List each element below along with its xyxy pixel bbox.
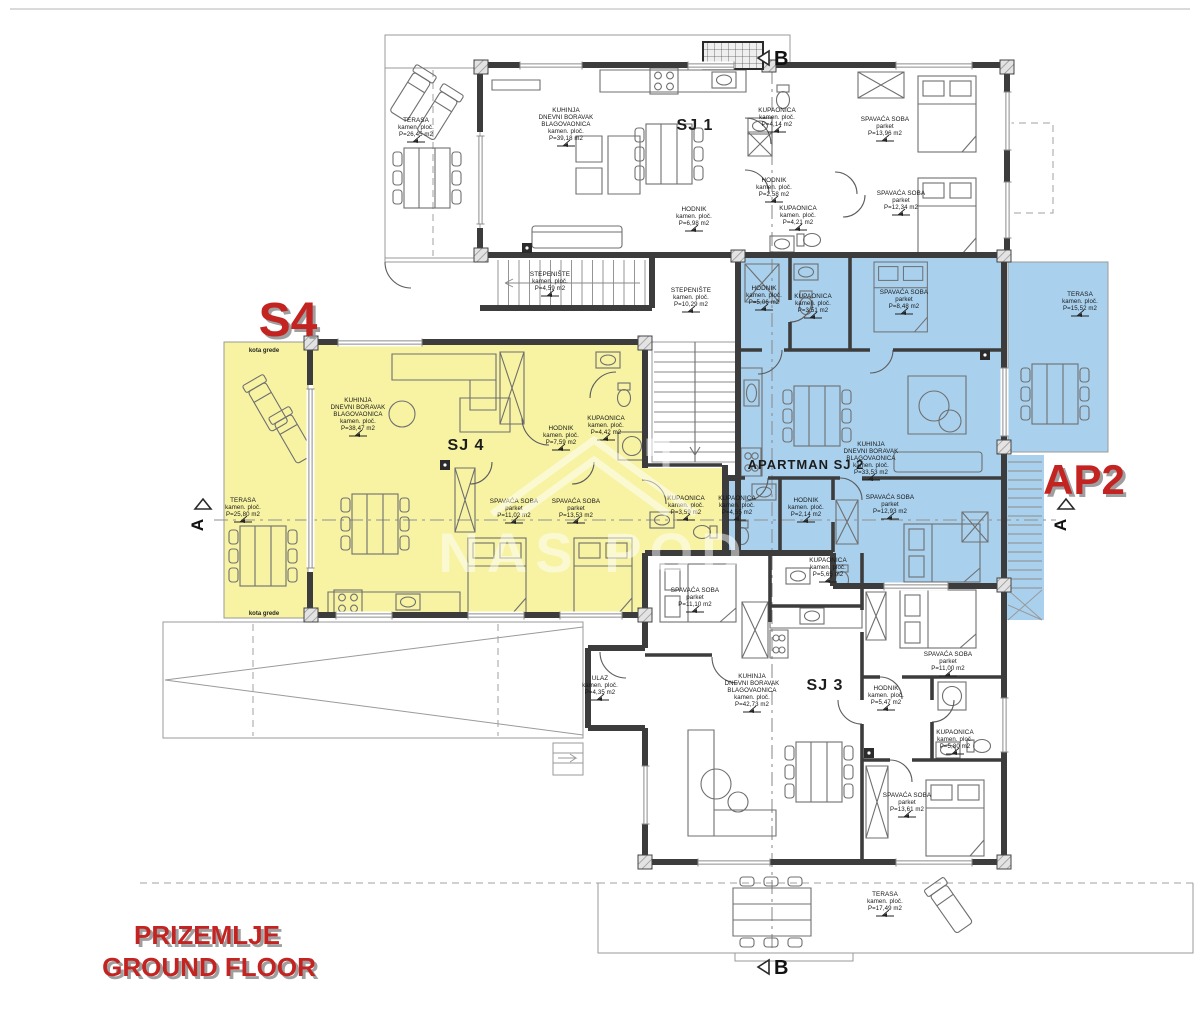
wardrobe-icon — [858, 72, 904, 98]
room-label-spava-a-soba-32: SPAVAĆA SOBAparketP=13,61 m2 — [883, 790, 932, 818]
svg-text:SPAVAĆA SOBAparketP=11,00 m2: SPAVAĆA SOBAparketP=11,00 m2 — [924, 649, 973, 672]
section-arrow-icon — [758, 960, 769, 974]
svg-text:B: B — [774, 957, 788, 979]
window-icon — [1001, 698, 1009, 752]
room-label-spava-a-soba-26: SPAVAĆA SOBAparketP=11,10 m2 — [671, 585, 720, 613]
section-arrow-icon — [195, 499, 211, 509]
svg-text:HODNIKkamen. ploč.P=6,98 m2: HODNIKkamen. ploč.P=6,98 m2 — [676, 206, 712, 227]
window-icon — [477, 136, 485, 224]
svg-text:A: A — [188, 519, 207, 531]
wardrobe-icon — [866, 592, 886, 640]
staircase-icon — [498, 260, 645, 305]
svg-text:GROUND FLOOR: GROUND FLOOR — [102, 952, 316, 982]
svg-text:KUPAONICAkamen. ploč.P=4,42 m2: KUPAONICAkamen. ploč.P=4,42 m2 — [587, 415, 625, 436]
svg-text:TERASAkamen. ploč.P=25,80 m2: TERASAkamen. ploč.P=25,80 m2 — [225, 497, 261, 518]
ap2-unit-region — [728, 258, 1004, 585]
room-label-terasa-0: TERASAkamen. ploč.P=26,45 m2 — [398, 117, 434, 143]
room-label-hodnik-7: HODNIKkamen. ploč.P=6,98 m2 — [676, 206, 712, 232]
svg-text:TERASAkamen. ploč.P=26,45 m2: TERASAkamen. ploč.P=26,45 m2 — [398, 117, 434, 138]
section-marker-a-2: A — [188, 499, 211, 531]
svg-text:SPAVAĆA SOBAparketP=13,61 m2: SPAVAĆA SOBAparketP=13,61 m2 — [883, 790, 932, 813]
floor-plan-page: TERASAkamen. ploč.P=26,45 m2KUHINJADNEVN… — [0, 0, 1200, 1022]
electrical-box-icon — [522, 243, 532, 253]
svg-text:STEPENIŠTEkamen. ploč.P=10,29: STEPENIŠTEkamen. ploč.P=10,29 m2 — [671, 285, 711, 308]
room-label-kupaonica-2: KUPAONICAkamen. ploč.P=4,14 m2 — [758, 107, 796, 133]
electrical-box-icon — [440, 460, 450, 470]
room-label-stepeni-te-9: STEPENIŠTEkamen. ploč.P=10,29 m2 — [671, 285, 711, 313]
svg-text:TERASAkamen. ploč.P=17,49 m2: TERASAkamen. ploč.P=17,49 m2 — [867, 891, 903, 912]
window-icon — [884, 583, 948, 591]
svg-text:KUHINJADNEVNI BORAVAKBLAGOVAON: KUHINJADNEVNI BORAVAKBLAGOVAONICAkamen. … — [539, 107, 594, 142]
window-icon — [688, 62, 734, 70]
svg-text:HODNIKkamen. ploč.P=2,58 m2: HODNIKkamen. ploč.P=2,58 m2 — [756, 177, 792, 198]
window-icon — [1004, 182, 1012, 238]
window-icon — [338, 339, 422, 347]
svg-text:KUPAONICAkamen. ploč.P=5,65 m2: KUPAONICAkamen. ploč.P=5,65 m2 — [809, 557, 847, 578]
electrical-box-icon — [864, 748, 874, 758]
svg-text:AP2: AP2 — [1043, 456, 1125, 503]
svg-text:S4: S4 — [259, 294, 318, 347]
floor-title-croatian: PRIZEMLJEPRIZEMLJE — [134, 920, 283, 953]
floor-plan-drawing: TERASAkamen. ploč.P=26,45 m2KUHINJADNEVN… — [0, 0, 1200, 1022]
window-icon — [560, 612, 622, 620]
window-icon — [336, 612, 392, 620]
svg-text:TERASAkamen. ploč.P=15,52 m2: TERASAkamen. ploč.P=15,52 m2 — [1062, 291, 1098, 312]
annotation-kota-grede-1: kota grede — [249, 611, 280, 617]
unit-label-sj4: SJ 4 — [448, 437, 485, 454]
room-label-spava-a-soba-29: SPAVAĆA SOBAparketP=11,00 m2 — [924, 649, 973, 677]
room-label-spava-a-soba-3: SPAVAĆA SOBAparketP=13,96 m2 — [861, 114, 910, 142]
svg-text:STEPENIŠTEkamen. ploč.P=4,59 m: STEPENIŠTEkamen. ploč.P=4,59 m2 — [530, 269, 570, 292]
window-icon — [896, 62, 972, 70]
room-label-kupaonica-5: KUPAONICAkamen. ploč.P=4,21 m2 — [779, 205, 817, 231]
svg-text:KUPAONICAkamen. ploč.P=3,51 m2: KUPAONICAkamen. ploč.P=3,51 m2 — [794, 293, 832, 314]
unit-label-sj1: SJ 1 — [677, 117, 714, 134]
room-label-hodnik-4: HODNIKkamen. ploč.P=2,58 m2 — [756, 177, 792, 203]
electrical-box-icon — [980, 350, 990, 360]
room-label-terasa-33: TERASAkamen. ploč.P=17,49 m2 — [867, 891, 903, 917]
svg-text:A: A — [1051, 519, 1070, 531]
floor-title-english: GROUND FLOORGROUND FLOOR — [102, 952, 319, 985]
svg-text:PRIZEMLJE: PRIZEMLJE — [134, 920, 280, 950]
window-icon — [520, 62, 582, 70]
room-label-stepeni-te-8: STEPENIŠTEkamen. ploč.P=4,59 m2 — [530, 269, 570, 297]
room-label-kuhinja-1: KUHINJADNEVNI BORAVAKBLAGOVAONICAkamen. … — [539, 107, 594, 147]
svg-text:KUPAONICAkamen. ploč.P=4,55 m2: KUPAONICAkamen. ploč.P=4,55 m2 — [718, 495, 756, 516]
window-icon — [1001, 368, 1009, 436]
svg-text:KUPAONICAkamen. ploč.P=4,14 m2: KUPAONICAkamen. ploč.P=4,14 m2 — [758, 107, 796, 128]
wardrobe-icon — [866, 766, 888, 838]
window-icon — [642, 766, 650, 824]
wardrobe-icon — [742, 602, 768, 658]
room-label-kupaonica-31: KUPAONICAkamen. ploč.P=5,80 m2 — [936, 729, 974, 755]
section-marker-b-1: B — [758, 957, 788, 979]
window-icon — [1004, 92, 1012, 150]
unit-label-apartman-sj2: APARTMAN SJ 2 — [748, 457, 865, 472]
unit-highlight-s4: S4S4 — [259, 294, 321, 350]
svg-text:KUPAONICAkamen. ploč.P=4,21 m2: KUPAONICAkamen. ploč.P=4,21 m2 — [779, 205, 817, 226]
svg-text:KUPAONICAkamen. ploč.P=5,80 m2: KUPAONICAkamen. ploč.P=5,80 m2 — [936, 729, 974, 750]
unit-label-sj3: SJ 3 — [807, 677, 844, 694]
room-label-kuhinja-28: KUHINJADNEVNI BORAVAKBLAGOVAONICAkamen. … — [725, 673, 780, 713]
watermark-text: NAS POD — [438, 521, 749, 584]
room-label-hodnik-30: HODNIKkamen. ploč.P=5,47 m2 — [868, 685, 904, 711]
window-icon — [896, 859, 972, 867]
svg-text:SPAVAĆA SOBAparketP=13,96 m2: SPAVAĆA SOBAparketP=13,96 m2 — [861, 114, 910, 137]
window-icon — [468, 612, 524, 620]
window-icon — [698, 859, 770, 867]
svg-text:B: B — [774, 48, 788, 70]
unit-highlight-ap2: AP2AP2 — [1043, 456, 1128, 506]
svg-text:KUHINJADNEVNI BORAVAKBLAGOVAON: KUHINJADNEVNI BORAVAKBLAGOVAONICAkamen. … — [725, 673, 780, 708]
window-icon — [307, 389, 315, 568]
